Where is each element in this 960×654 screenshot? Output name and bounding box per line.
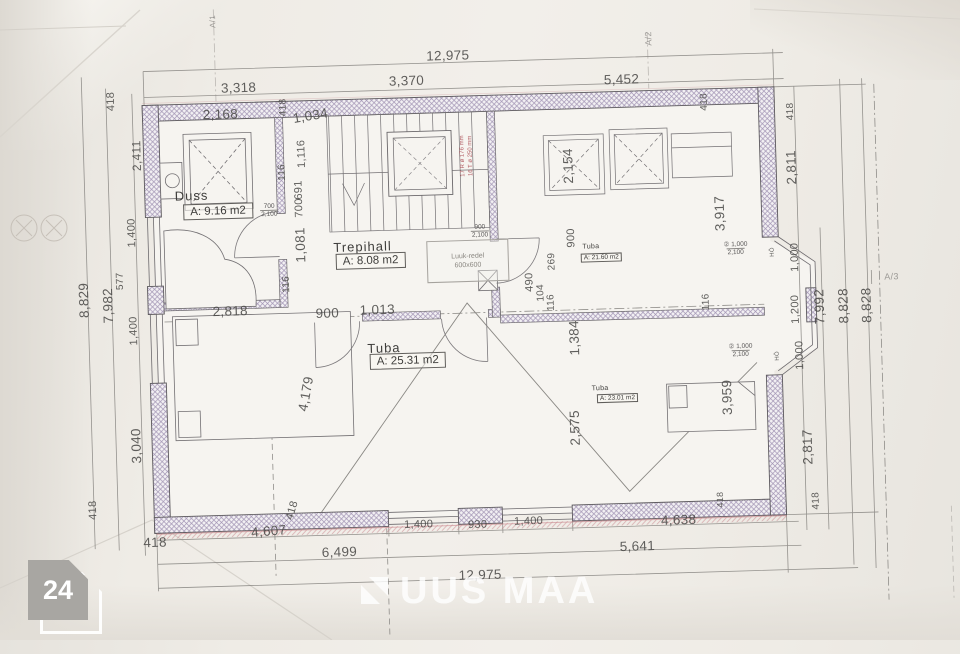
dimension-label: 418 [785, 102, 797, 120]
watermark: UUS MAA [360, 572, 598, 610]
badge-shape: 24 [28, 560, 88, 620]
dimension-label: 418 [715, 492, 725, 508]
dimension-label: 3,917 [712, 196, 728, 232]
dimension-label: 3,040 [128, 428, 144, 464]
dimension-label: 930 [468, 519, 488, 532]
dimension-label: 418 [810, 492, 822, 510]
dimension-label: 418 [105, 92, 118, 112]
dimension-label: 4,607 [251, 522, 287, 540]
dimension-label: 900 [565, 228, 578, 248]
dimension-label: 2,411 [129, 140, 144, 171]
dimension-label: 700 [293, 198, 306, 218]
dimension-label: 269 [546, 253, 558, 271]
dimension-label: HÖ [775, 351, 781, 361]
dimension-label: 2,168 [203, 106, 239, 122]
plan-labels: 12,9753,3183,3705,4524182,4114184184182,… [0, 0, 960, 654]
dimension-label: 4,179 [295, 375, 316, 412]
photo-count-badge[interactable]: 24 [26, 560, 104, 636]
dimension-label: 691 [292, 180, 305, 200]
room-name: Duss [175, 188, 209, 204]
dimension-label: 17 R ø 176 mm [459, 135, 466, 177]
dimension-label: 3,370 [389, 73, 425, 89]
dimension-label: 1,034 [292, 105, 329, 126]
room-name: Tuba [582, 243, 599, 250]
dimension-label: 8,828 [858, 287, 874, 323]
dimension-label: 116 [281, 276, 292, 293]
dimension-label: 3,318 [221, 80, 257, 96]
floor-plan: Luuk-redel 600x600 12,9753,3183,3705,452… [0, 0, 960, 654]
dimension-label: 1,000 [788, 243, 801, 272]
room-area: A: 23.01 m2 [597, 393, 638, 403]
room-name: Tuba [592, 385, 609, 392]
dimension-label: 1,116 [295, 140, 308, 169]
dimension-label: 8,828 [835, 288, 851, 324]
dimension-label: 1,400 [404, 518, 433, 531]
dimension-label: 1,013 [359, 302, 395, 318]
room-area: A: 8.08 m2 [336, 252, 406, 270]
dimension-label: 1,384 [566, 320, 582, 356]
dimension-label: 577 [115, 272, 127, 290]
dimension-label: 1,400 [127, 316, 140, 345]
room-area: A: 25.31 m2 [370, 352, 446, 370]
dimension-label: 1,400 [125, 218, 138, 247]
dimension-label: 418 [87, 500, 100, 520]
dimension-label: 16 T ø 250 mm [467, 136, 474, 177]
room-area: A: 21.60 m2 [581, 252, 622, 262]
dimension-label: 2,817 [799, 429, 815, 465]
dimension-label: 1,200 [789, 295, 802, 324]
room-area: A: 9.16 m2 [183, 202, 253, 220]
dimension-label: 4,638 [661, 512, 697, 528]
dimension-label: 1,400 [514, 515, 543, 528]
opening-size-marker: ② 1,0002,100 [728, 343, 752, 360]
dimension-label: 3,959 [719, 379, 735, 415]
opening-size-marker: 9002,100 [471, 223, 490, 239]
badge-number: 24 [43, 575, 73, 606]
dimension-label: 490 [523, 272, 536, 292]
dimension-label: 116 [545, 294, 556, 311]
dimension-label: 5,641 [620, 538, 656, 554]
watermark-brand: UUS MAA [400, 572, 598, 610]
dimension-label: 8,829 [76, 283, 92, 319]
dimension-label: 7,992 [811, 289, 827, 325]
dimension-label: 116 [276, 164, 287, 181]
dimension-label: 2,575 [567, 410, 583, 446]
dimension-label: 418 [698, 93, 710, 111]
dimension-label: 1,000 [793, 340, 806, 369]
dimension-label: 2,154 [560, 148, 576, 184]
dimension-label: 12,975 [426, 47, 470, 63]
dimension-label: 1,081 [292, 227, 308, 263]
dimension-label: A/3 [884, 271, 899, 281]
dimension-label: 418 [143, 535, 167, 551]
dimension-label: HÖ [770, 247, 776, 257]
dimension-label: A/1 [208, 15, 217, 28]
dimension-label: 2,818 [212, 303, 248, 319]
dimension-label: 116 [700, 293, 711, 310]
dimension-label: 418 [284, 499, 301, 521]
uusmaa-logo-icon [360, 577, 390, 605]
dimension-label: 2,811 [783, 150, 799, 185]
dimension-label: 7,982 [100, 288, 116, 324]
dimension-label: 418 [277, 98, 289, 116]
opening-size-marker: ② 1,0002,100 [723, 241, 747, 258]
dimension-label: 6,499 [322, 544, 358, 560]
dimension-label: 900 [315, 305, 339, 321]
dimension-label: 5,452 [604, 71, 640, 87]
dimension-label: A/2 [643, 31, 653, 46]
opening-size-marker: 7002,100 [260, 203, 279, 219]
